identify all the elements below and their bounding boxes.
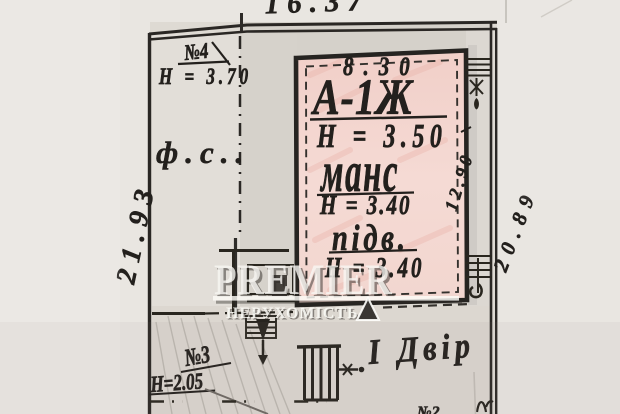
svg-text:НЕРУХОМІСТЬ: НЕРУХОМІСТЬ <box>226 305 359 322</box>
svg-text:ф.с..: ф.с.. <box>156 135 250 170</box>
svg-text:Н = 3.40: Н = 3.40 <box>319 190 411 220</box>
svg-text:Н = 3.70: Н = 3.70 <box>158 65 252 90</box>
